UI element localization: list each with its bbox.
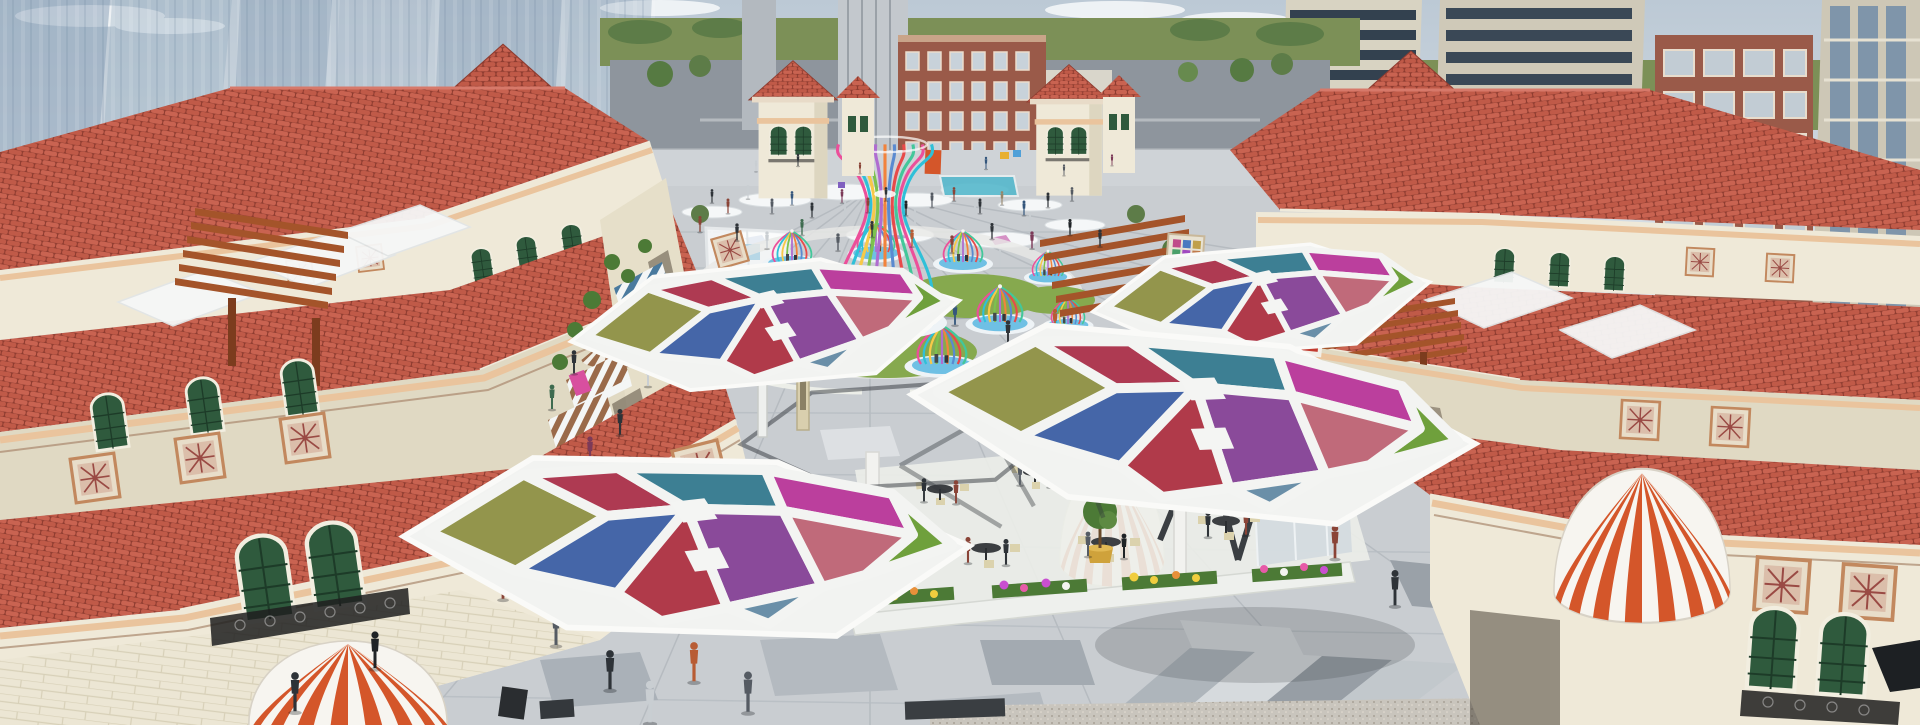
- rendering-canvas: [0, 0, 1920, 725]
